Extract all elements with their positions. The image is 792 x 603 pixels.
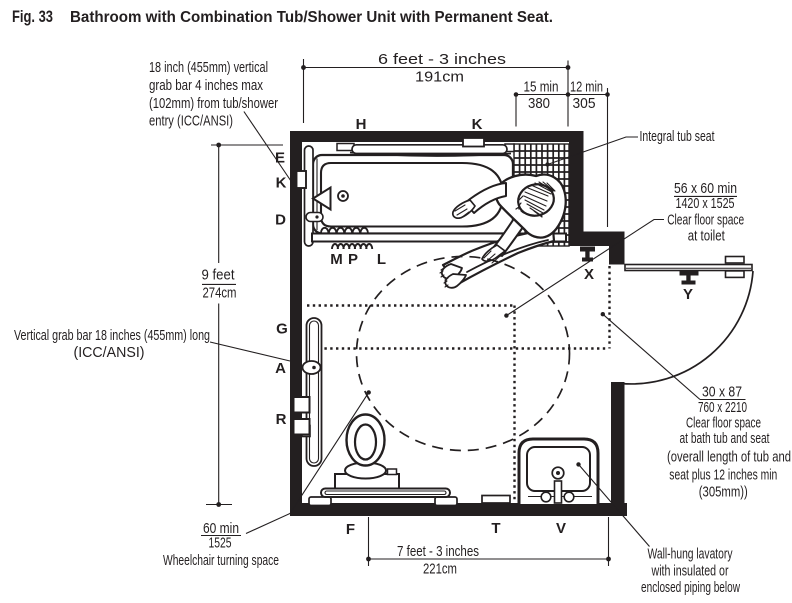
- svg-text:T: T: [491, 520, 500, 537]
- svg-text:R: R: [276, 411, 287, 428]
- svg-text:K: K: [472, 116, 483, 133]
- svg-text:7 feet - 3 inches: 7 feet - 3 inches: [397, 543, 479, 560]
- svg-text:E: E: [275, 150, 285, 167]
- svg-text:A: A: [275, 360, 286, 377]
- svg-text:Wheelchair turning space: Wheelchair turning space: [163, 552, 279, 569]
- svg-text:(overall length of tub and: (overall length of tub and: [667, 449, 791, 466]
- svg-text:Wall-hung lavatory: Wall-hung lavatory: [648, 546, 733, 563]
- svg-text:at bath tub and seat: at bath tub and seat: [680, 430, 771, 447]
- svg-text:Y: Y: [683, 286, 693, 303]
- svg-text:with insulated or: with insulated or: [651, 563, 729, 580]
- svg-text:760 x 2210: 760 x 2210: [698, 399, 747, 416]
- svg-text:Integral tub seat: Integral tub seat: [640, 128, 716, 145]
- svg-text:274cm: 274cm: [203, 285, 237, 302]
- svg-text:entry (ICC/ANSI): entry (ICC/ANSI): [149, 113, 233, 130]
- svg-text:P: P: [348, 251, 358, 268]
- svg-text:30 x 87: 30 x 87: [702, 384, 742, 401]
- svg-text:6 feet - 3 inches: 6 feet - 3 inches: [378, 51, 506, 68]
- svg-text:enclosed piping below: enclosed piping below: [641, 579, 740, 596]
- svg-text:18 inch (455mm) vertical: 18 inch (455mm) vertical: [149, 59, 268, 76]
- svg-text:K: K: [276, 175, 287, 192]
- svg-text:1420 x 1525: 1420 x 1525: [676, 195, 735, 212]
- svg-text:191cm: 191cm: [415, 69, 464, 86]
- svg-text:1525: 1525: [209, 535, 232, 552]
- svg-text:221cm: 221cm: [423, 561, 457, 578]
- svg-text:H: H: [356, 116, 367, 133]
- svg-text:at toilet: at toilet: [688, 228, 726, 245]
- svg-text:Clear floor space: Clear floor space: [667, 212, 744, 229]
- svg-text:D: D: [275, 212, 286, 229]
- svg-text:V: V: [556, 520, 566, 537]
- svg-text:Bathroom with Combination Tub/: Bathroom with Combination Tub/Shower Uni…: [70, 9, 553, 26]
- svg-text:X: X: [584, 266, 594, 283]
- svg-text:305: 305: [573, 95, 596, 112]
- svg-text:15 min: 15 min: [524, 79, 559, 96]
- svg-text:380: 380: [528, 95, 550, 112]
- svg-text:(ICC/ANSI): (ICC/ANSI): [74, 344, 145, 361]
- svg-text:seat plus 12 inches min: seat plus 12 inches min: [669, 467, 777, 484]
- svg-text:12 min: 12 min: [570, 79, 603, 96]
- svg-text:(102mm) from tub/shower: (102mm) from tub/shower: [149, 95, 278, 112]
- svg-text:(305mm)): (305mm)): [699, 484, 748, 501]
- svg-text:grab bar 4 inches max: grab bar 4 inches max: [149, 77, 263, 94]
- svg-text:Clear floor space: Clear floor space: [686, 415, 761, 432]
- svg-text:Fig. 33: Fig. 33: [12, 8, 53, 26]
- svg-text:G: G: [276, 321, 288, 338]
- svg-text:F: F: [346, 521, 355, 538]
- svg-text:M: M: [330, 251, 343, 268]
- svg-text:Vertical grab bar 18 inches (4: Vertical grab bar 18 inches (455mm) long: [14, 327, 210, 344]
- svg-text:L: L: [377, 251, 386, 268]
- svg-text:9 feet: 9 feet: [202, 267, 236, 284]
